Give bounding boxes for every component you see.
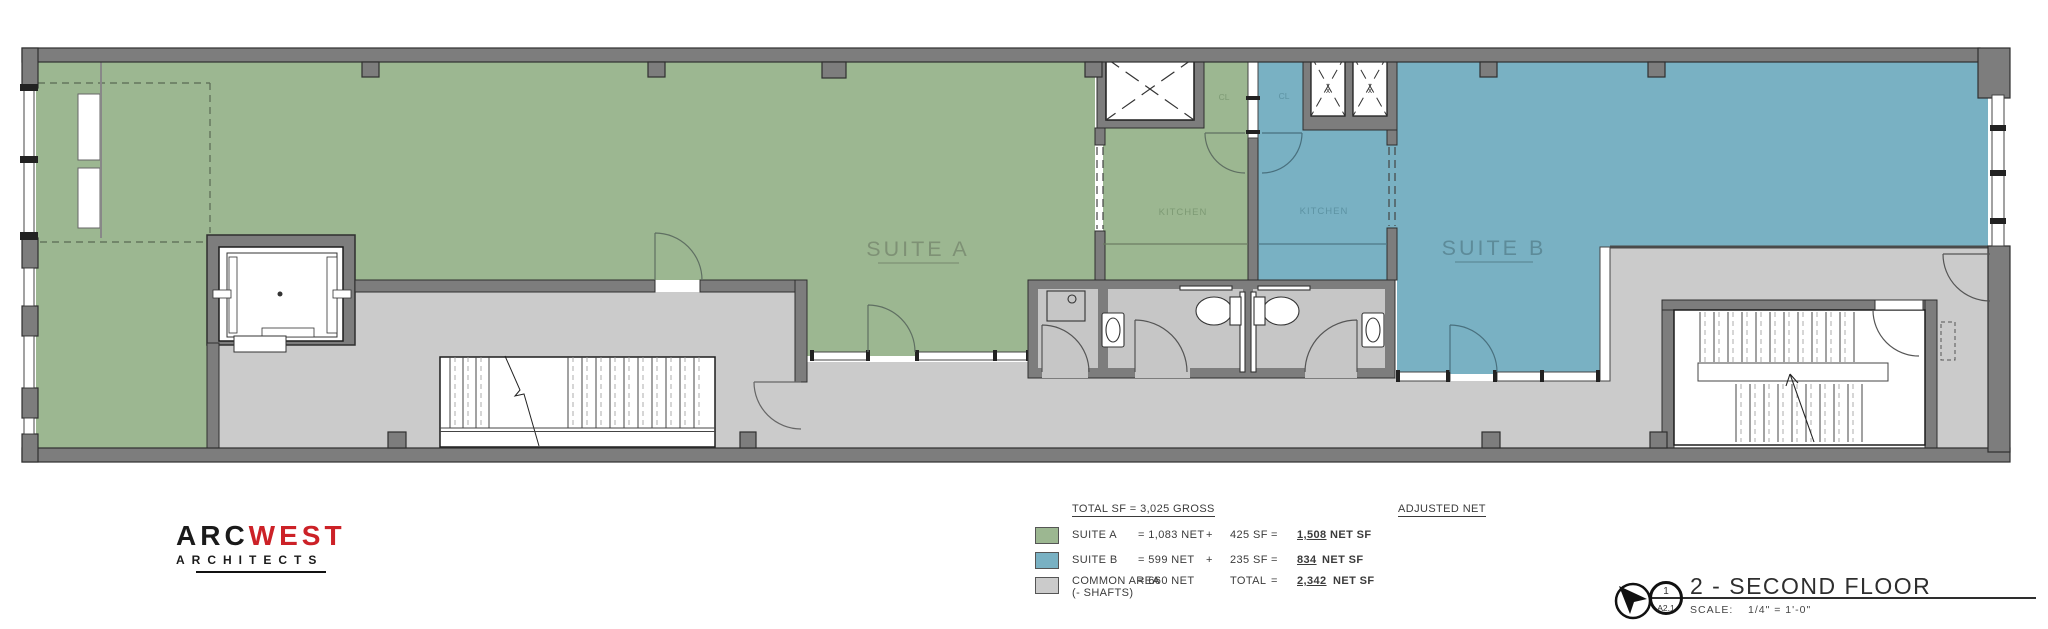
logo-wordmark: ARCWEST xyxy=(176,522,346,550)
detail-number: 1 xyxy=(1663,586,1669,597)
grab-bar xyxy=(1180,286,1232,290)
kitchen-a-label: KITCHEN xyxy=(1159,207,1208,218)
elevator xyxy=(207,235,355,352)
closet-b-label: CL xyxy=(1279,91,1290,101)
stair-landing xyxy=(1698,363,1888,381)
floor-plan-sheet: SUITE A SUITE B KITCHEN KITCHEN CL CL x … xyxy=(0,0,2048,629)
scale-label: SCALE: xyxy=(1690,604,1733,616)
stair-door-panel xyxy=(1875,300,1923,310)
toilet xyxy=(1196,297,1232,325)
toilet xyxy=(1263,297,1299,325)
sheet-number: A2.1 xyxy=(1657,603,1675,613)
scale-value: 1/4" = 1'-0" xyxy=(1748,604,1811,616)
wall-left-of-corridor xyxy=(207,343,219,448)
suite-a-label: SUITE A xyxy=(866,237,969,261)
closet-a-label: CL xyxy=(1219,92,1230,102)
suite-b-label: SUITE B xyxy=(1442,236,1547,260)
restroom-block xyxy=(1028,280,1395,378)
logo-arc: ARC xyxy=(176,520,249,551)
drawing-title: 2 - SECOND FLOOR xyxy=(1690,573,1931,599)
stair-left xyxy=(440,356,715,447)
logo-rule xyxy=(196,571,326,573)
logo-subtitle: ARCHITECTS xyxy=(176,553,346,567)
shaft-b-mark: x xyxy=(1368,86,1372,95)
arcwest-logo: ARCWEST ARCHITECTS xyxy=(176,522,346,573)
shaft-a-mark: x xyxy=(1326,86,1330,95)
logo-west: WEST xyxy=(249,520,346,551)
kitchen-b-label: KITCHEN xyxy=(1300,206,1349,217)
title-block: 1 A2.1 2 - SECOND FLOOR SCALE: 1/4" = 1'… xyxy=(1616,573,2036,618)
stair-right xyxy=(1662,300,1955,448)
elevator-door xyxy=(234,336,286,352)
grab-bar xyxy=(1258,286,1310,290)
